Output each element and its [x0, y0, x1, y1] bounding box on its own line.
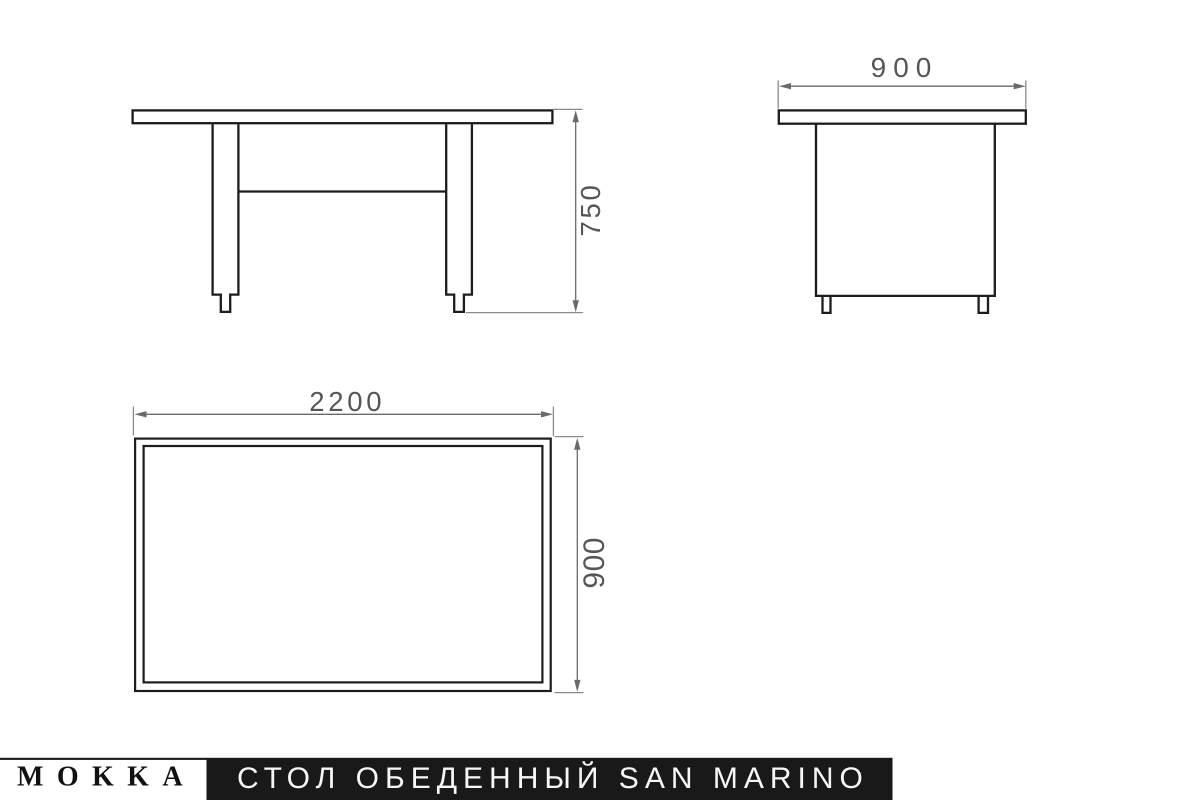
svg-text:900: 900: [578, 537, 611, 589]
svg-text:СТОЛ ОБЕДЕННЫЙ SAN MARINO: СТОЛ ОБЕДЕННЫЙ SAN MARINO: [237, 761, 869, 795]
svg-text:750: 750: [575, 183, 606, 237]
svg-text:900: 900: [871, 52, 939, 83]
svg-text:2200: 2200: [309, 386, 385, 417]
svg-text:MOKKA: MOKKA: [17, 762, 196, 793]
